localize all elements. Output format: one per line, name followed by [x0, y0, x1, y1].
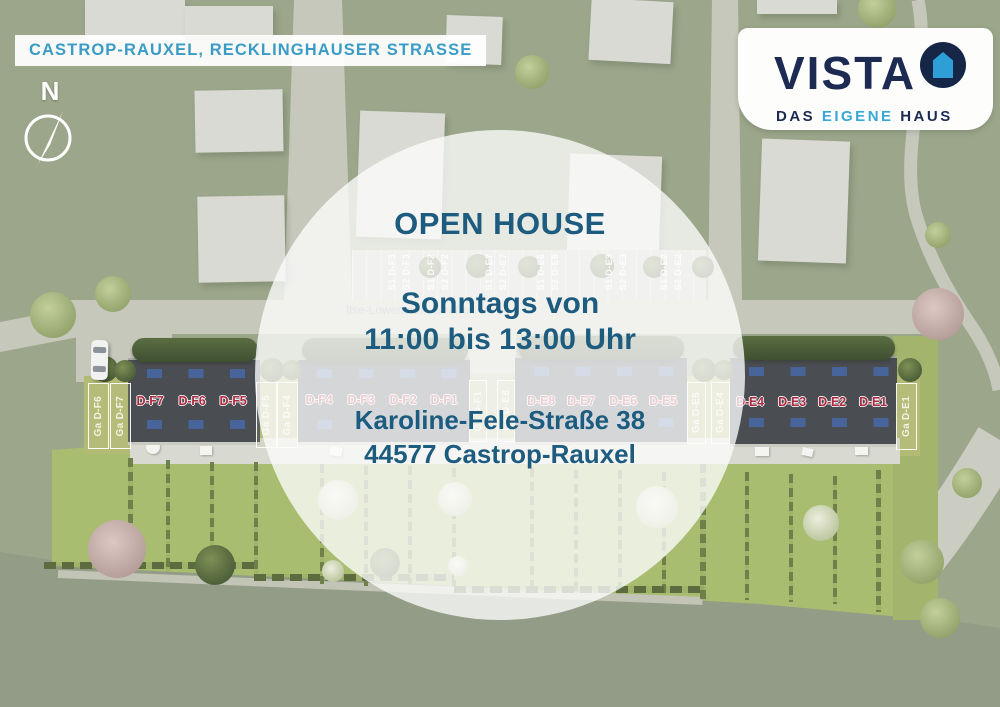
brand-circle: [920, 42, 966, 88]
parked-car: [91, 340, 109, 380]
tree: [195, 545, 235, 585]
tree: [920, 598, 960, 638]
tree: [30, 292, 76, 338]
front-bushes: [132, 338, 258, 362]
patio-item: [755, 446, 769, 456]
site-plan: Ilse-Löwenstein-Straße D-F7 D-F6 D-F5 D-…: [0, 0, 1000, 707]
unit-label: D-E3: [778, 395, 806, 409]
unit-label: D-E2: [818, 395, 846, 409]
house-icon: [933, 52, 953, 78]
tree: [322, 560, 344, 582]
car-rear-window: [93, 366, 106, 372]
unit-label: D-E1: [859, 395, 887, 409]
location-banner: CASTROP-RAUXEL, RECKLINGHAUSER STRASSE: [15, 35, 486, 66]
garage-label: Ga D-F6: [88, 383, 109, 449]
brand-tagline: DAS EIGENE HAUS: [776, 108, 953, 125]
vista-logo-card: VISTA DAS EIGENE HAUS: [738, 28, 993, 130]
patio-item: [855, 446, 868, 455]
building-footprint: [757, 0, 837, 14]
tree: [925, 222, 951, 248]
hedge: [745, 472, 749, 600]
unit-label: D-F5: [220, 394, 247, 408]
tree: [898, 358, 922, 382]
hedge: [166, 460, 170, 572]
building-footprint: [588, 0, 673, 64]
address-line: Karoline-Fele-Straße 38: [355, 405, 645, 436]
unit-label: D-F7: [137, 394, 164, 408]
building-footprint: [197, 195, 285, 283]
schedule-line: Sonntags von: [401, 287, 599, 321]
hedge: [789, 474, 793, 602]
tree: [515, 55, 549, 89]
building-footprint: [194, 89, 283, 153]
compass-needle-icon: [18, 106, 82, 170]
hedge: [254, 462, 258, 574]
compass-icon: N: [18, 76, 82, 172]
patio-item: [200, 446, 212, 455]
hedge: [876, 470, 881, 612]
tree: [95, 276, 131, 312]
schedule-line: 11:00 bis 13:00 Uhr: [364, 323, 636, 357]
hedge: [833, 476, 837, 604]
car-windshield: [93, 347, 106, 353]
building-footprint: [758, 139, 850, 264]
compass-north-label: N: [41, 76, 60, 107]
spotlight-circle: [255, 130, 745, 620]
tagline-haus: HAUS: [900, 108, 953, 125]
tree: [88, 520, 146, 578]
front-bushes: [733, 336, 895, 360]
tree: [900, 540, 944, 584]
unit-label: D-F6: [179, 394, 206, 408]
tree: [912, 288, 964, 340]
tree: [952, 468, 982, 498]
tree: [803, 505, 839, 541]
address-line: 44577 Castrop-Rauxel: [364, 439, 636, 470]
tagline-das: DAS: [776, 108, 815, 125]
building-footprint: [185, 6, 273, 36]
garage-label: Ga D-E1: [896, 383, 917, 450]
brand-name: VISTA: [774, 50, 916, 96]
tagline-eigene: EIGENE: [822, 108, 894, 125]
tree: [114, 360, 136, 382]
open-house-title: OPEN HOUSE: [394, 206, 606, 242]
garage-label: Ga D-F7: [110, 383, 131, 449]
